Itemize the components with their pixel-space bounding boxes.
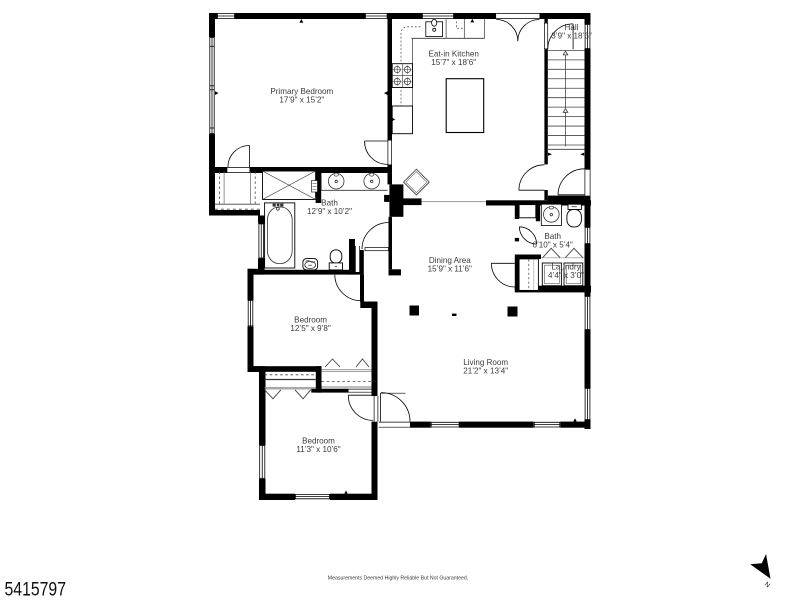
svg-text:12’9" x 10’2": 12’9" x 10’2": [307, 207, 352, 216]
svg-text:6’10" x 5’4": 6’10" x 5’4": [532, 240, 573, 249]
svg-text:3’9" x 18’6": 3’9" x 18’6": [551, 32, 592, 41]
svg-text:Measurements Deemed Highly Rel: Measurements Deemed Highly Reliable But …: [328, 576, 468, 582]
svg-text:21’2" x 13’4": 21’2" x 13’4": [463, 367, 508, 376]
svg-text:11’3" x 10’6": 11’3" x 10’6": [296, 445, 340, 454]
svg-text:15’7" x 18’6": 15’7" x 18’6": [431, 58, 476, 67]
svg-text:17’9" x 15’2": 17’9" x 15’2": [279, 95, 324, 104]
svg-text:15’9" x 11’6": 15’9" x 11’6": [428, 265, 472, 274]
svg-text:12’5" x 9’8": 12’5" x 9’8": [290, 324, 331, 333]
svg-text:5415797: 5415797: [5, 580, 67, 600]
svg-text:4’4" x 3’0": 4’4" x 3’0": [548, 271, 584, 280]
